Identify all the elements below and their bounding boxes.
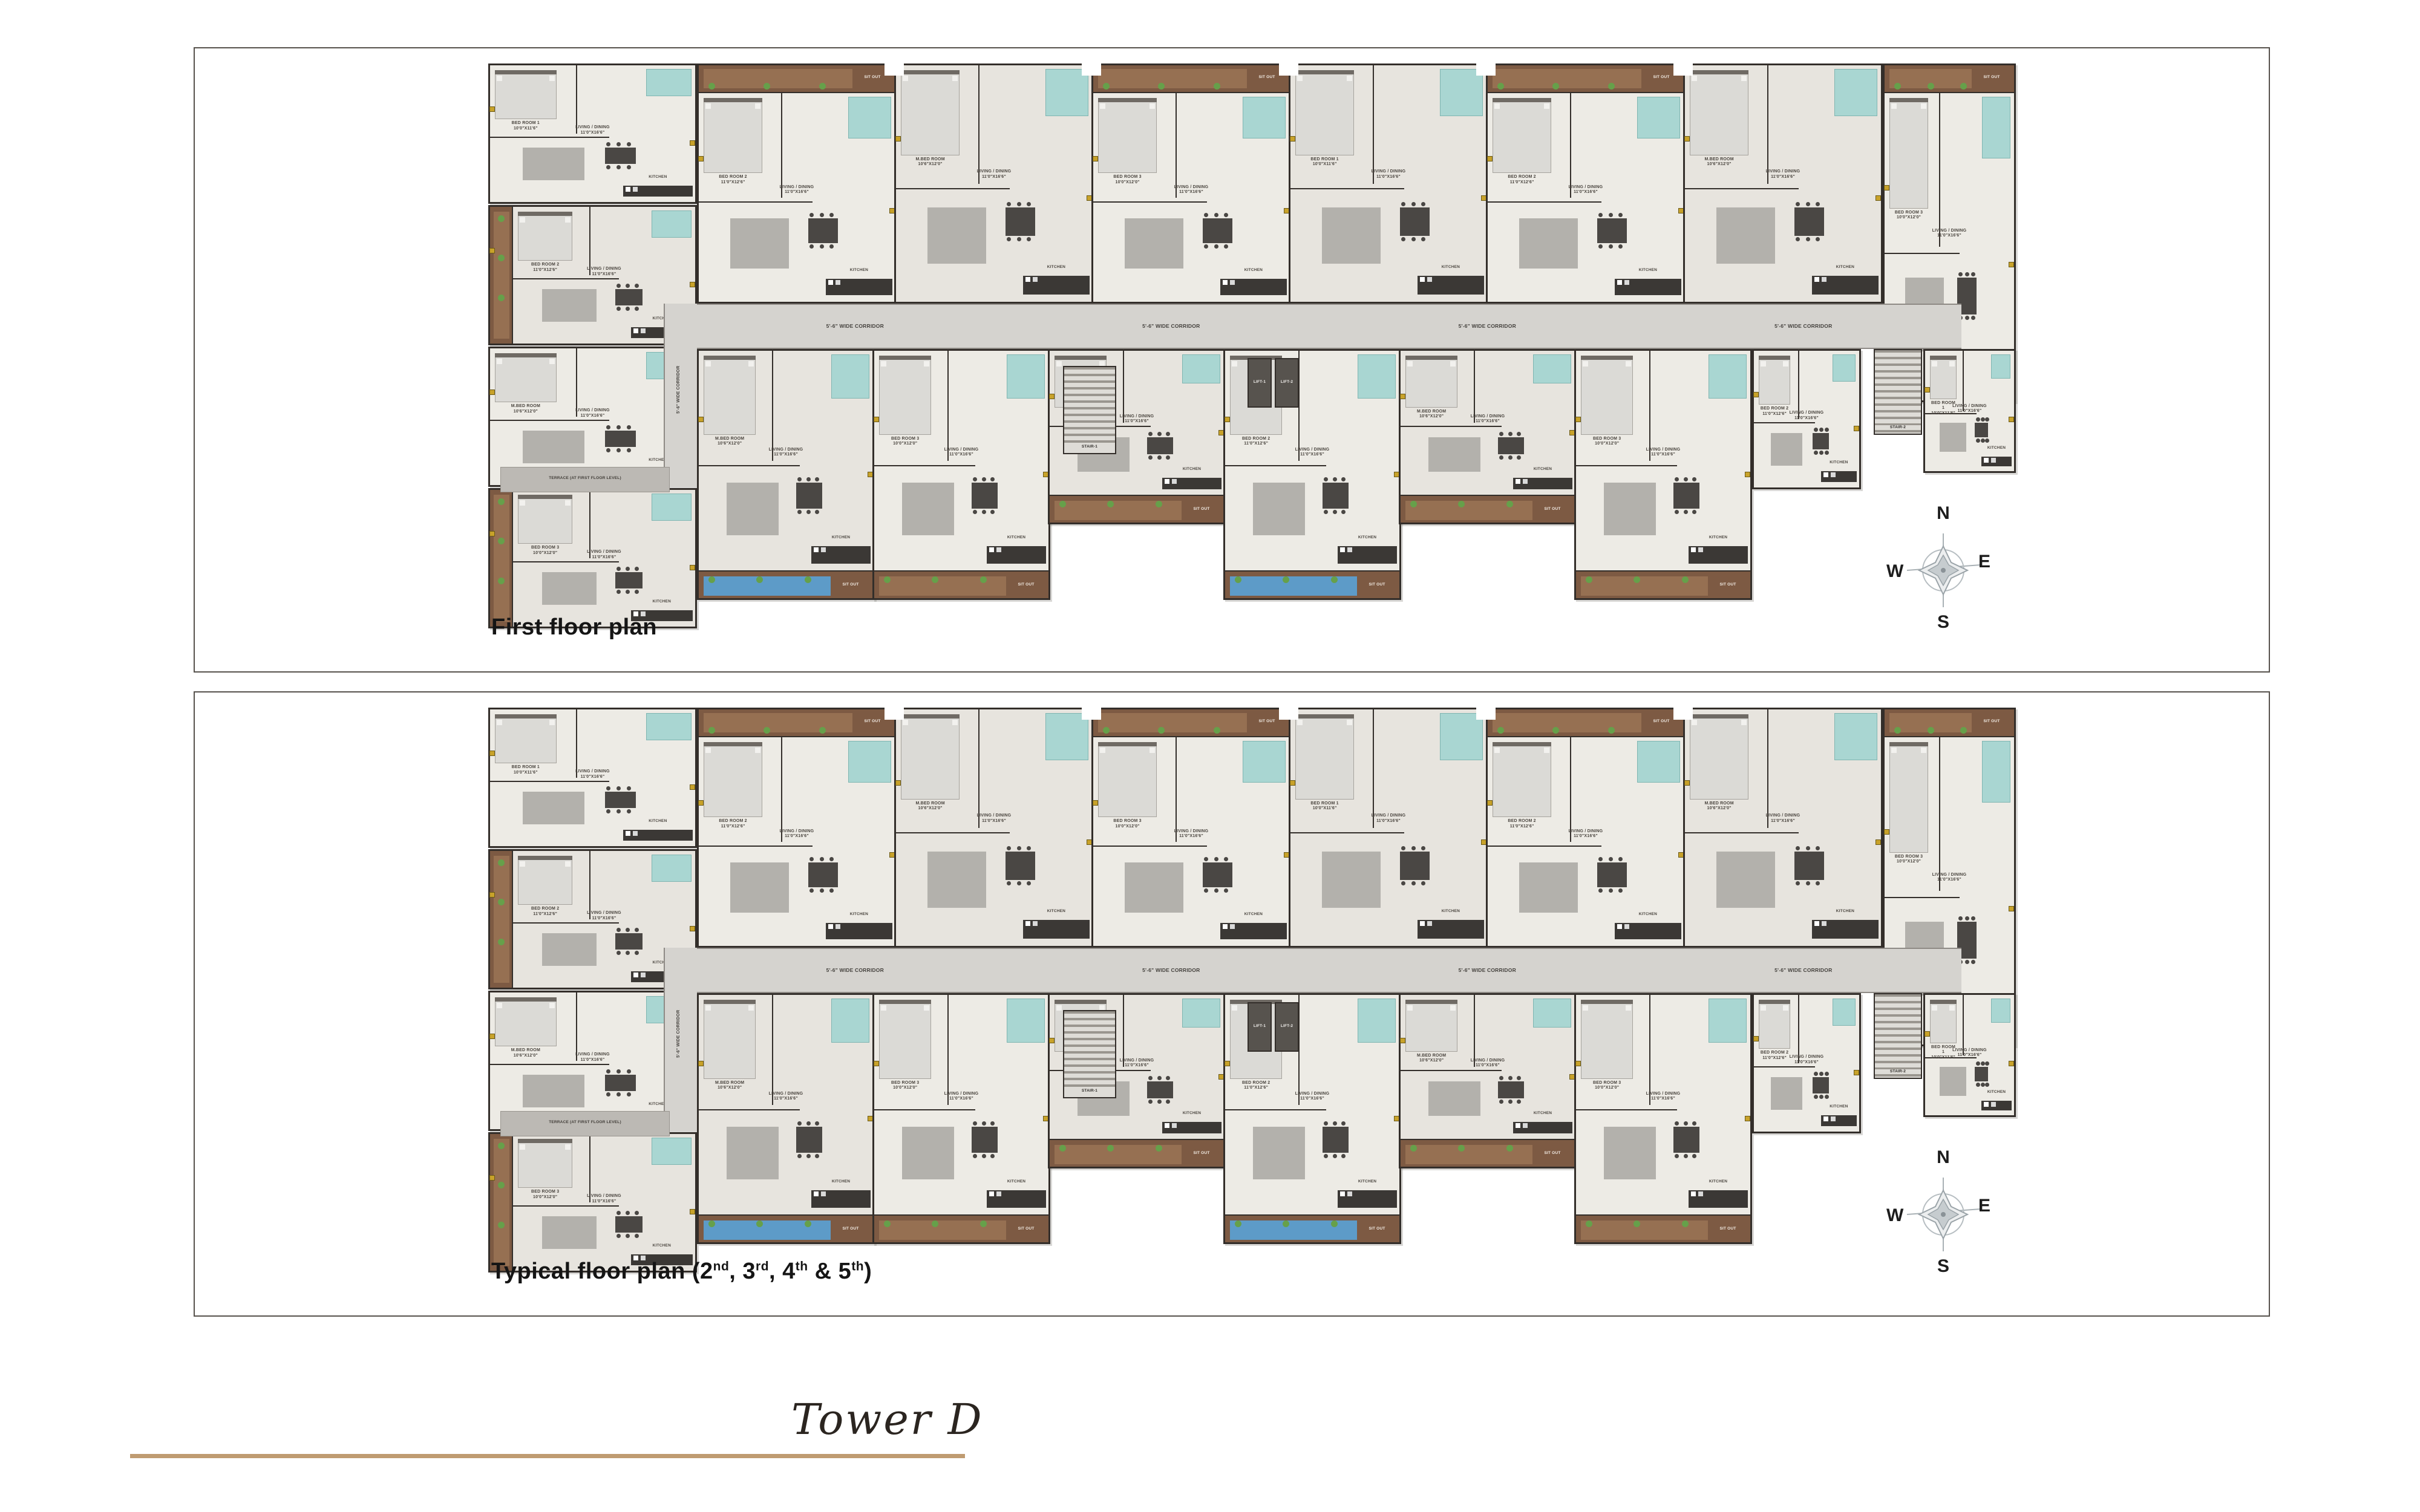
plant-icon [1928, 83, 1934, 90]
pillow-icon [755, 103, 760, 109]
door-marker [1049, 1038, 1055, 1043]
compass-west-label: W [1886, 1207, 1903, 1225]
apartment-unit: SIT OUTBED ROOM 3 10'0"X12'0"LIVING / DI… [872, 349, 1050, 600]
bedroom-label: BED ROOM 2 11'0"X12'6" [1493, 819, 1551, 829]
kitchen-counter [1821, 471, 1857, 482]
chair-icon [1508, 432, 1512, 436]
balcony-label: SIT OUT [1009, 1227, 1044, 1231]
inner-wall [1885, 253, 1960, 254]
appliance-icon [1420, 921, 1425, 926]
chair-icon [982, 510, 986, 514]
appliance-icon [1523, 1123, 1528, 1128]
chair-icon [1421, 202, 1425, 206]
kitchen-label: KITCHEN [987, 535, 1046, 540]
kitchen-label: KITCHEN [1162, 1111, 1221, 1116]
balcony [490, 851, 513, 988]
door-marker [1884, 185, 1889, 191]
kitchen-label: KITCHEN [1338, 535, 1397, 540]
chair-icon [1401, 846, 1405, 850]
plant-icon [498, 1222, 505, 1228]
kitchen-counter [1615, 279, 1681, 296]
bed-icon [518, 1139, 572, 1188]
inner-wall [978, 709, 979, 828]
chair-icon [1981, 417, 1985, 422]
typical-floor-caption: Typical floor plan (2nd, 3rd, 4th & 5th) [491, 1259, 872, 1285]
chair-icon [1814, 1072, 1818, 1076]
chair-icon [1499, 455, 1503, 460]
kitchen-label: KITCHEN [1220, 912, 1287, 917]
chair-icon [1148, 1100, 1153, 1104]
inner-wall [490, 420, 609, 421]
kitchen-label: KITCHEN [1821, 460, 1857, 465]
rug-icon [1322, 207, 1381, 264]
door-marker [489, 892, 495, 898]
inner-wall [1576, 465, 1677, 466]
kitchen-counter [1220, 923, 1287, 940]
door-marker [1753, 392, 1759, 397]
inner-wall [1925, 413, 1977, 414]
balcony [490, 207, 513, 344]
dining-table-icon [1498, 437, 1524, 455]
inner-wall [699, 201, 813, 203]
corridor-vertical [664, 304, 697, 487]
door-marker [1745, 472, 1750, 477]
chair-icon [1825, 451, 1829, 455]
chair-icon [1825, 428, 1829, 432]
inner-wall [1123, 995, 1124, 1067]
pillow-icon [705, 1005, 711, 1011]
balcony-label: SIT OUT [1974, 75, 2009, 80]
chair-icon [1976, 1083, 1980, 1087]
inner-wall [1373, 65, 1374, 184]
staircase: STAIR-1 [1063, 366, 1116, 454]
lift-label: LIFT-2 [1276, 1024, 1298, 1029]
door-marker [690, 926, 695, 931]
living-label: LIVING / DINING 11'0"X16'6" [951, 169, 1038, 180]
bathroom [646, 69, 692, 96]
inner-wall [1798, 995, 1799, 1063]
rug-icon [927, 852, 986, 908]
bed-headboard [495, 997, 557, 1002]
balcony-deck [1098, 713, 1247, 732]
plant-icon [1608, 83, 1615, 90]
chair-icon [982, 1121, 986, 1126]
kitchen-counter [1338, 1190, 1397, 1208]
balcony-deck [1581, 576, 1708, 596]
chair-icon [627, 448, 631, 452]
chair-icon [626, 1234, 630, 1238]
pillow-icon [549, 359, 555, 364]
plant-icon [1552, 727, 1559, 734]
balcony-deck [1405, 501, 1532, 520]
kitchen-counter [1023, 276, 1090, 295]
appliance-icon [1617, 924, 1622, 929]
door-marker [1290, 136, 1295, 142]
inner-wall [576, 65, 577, 134]
appliance-icon [996, 1191, 1001, 1196]
plant-icon [805, 576, 811, 583]
chair-icon [1806, 237, 1810, 241]
bathroom [1833, 999, 1856, 1026]
shaft-notch [1279, 705, 1298, 720]
living-label: LIVING / DINING 11'0"X16'6" [1921, 229, 1978, 239]
chair-icon [1825, 1072, 1829, 1076]
inner-wall [1939, 737, 1940, 891]
kitchen-label: KITCHEN [1338, 1179, 1397, 1184]
bed-icon [495, 714, 557, 763]
bedroom-label: BED ROOM 2 11'0"X12'6" [704, 819, 762, 829]
apartment-unit: SIT OUTM.BED ROOM 10'6"X12'0"LIVING / DI… [1399, 993, 1577, 1168]
balcony-deck [704, 713, 852, 732]
chair-icon [1157, 1100, 1162, 1104]
door-marker [1753, 1036, 1759, 1041]
corridor-vertical [664, 948, 697, 1131]
caption-ordinal: nd [713, 1259, 730, 1273]
rug-icon [1771, 433, 1802, 466]
chair-icon [1333, 1154, 1337, 1158]
pillow-icon [1347, 76, 1352, 81]
pillow-icon [520, 861, 525, 867]
inner-wall [1093, 201, 1207, 203]
plant-icon [498, 1142, 505, 1149]
chair-icon [1333, 1121, 1337, 1126]
plant-icon [1410, 501, 1417, 507]
inner-wall [699, 846, 813, 847]
chair-icon [806, 1121, 811, 1126]
chair-icon [1341, 1154, 1346, 1158]
plant-icon [498, 215, 505, 222]
chair-icon [1609, 888, 1613, 893]
appliance-icon [1165, 479, 1169, 484]
chair-icon [1007, 881, 1011, 885]
pillow-icon [1783, 1005, 1788, 1011]
inner-wall [513, 278, 619, 279]
rug-icon [523, 1075, 584, 1107]
chair-icon [806, 477, 811, 481]
plant-icon [980, 576, 987, 583]
apartment-unit: M.BED ROOM 10'6"X12'0"LIVING / DINING 11… [894, 64, 1094, 304]
chair-icon [806, 1154, 811, 1158]
living-label: LIVING / DINING 11'0"X16'6" [1740, 169, 1826, 180]
chair-icon [1825, 1095, 1829, 1099]
bedroom-label: BED ROOM 3 10'0"X12'0" [1098, 819, 1157, 829]
chair-icon [626, 1211, 630, 1215]
plant-icon [1497, 727, 1504, 734]
bed-headboard [879, 1000, 931, 1004]
dining-table-icon [796, 483, 822, 509]
living-label: LIVING / DINING 11'0"X16'6" [748, 1092, 825, 1102]
lift-label: LIFT-1 [1249, 380, 1270, 385]
door-marker [1093, 800, 1098, 806]
inner-wall [513, 561, 619, 562]
pillow-icon [1232, 1005, 1237, 1011]
compass-south-label: S [1883, 1257, 2004, 1276]
bed-headboard [518, 1139, 572, 1143]
chair-icon [1148, 455, 1153, 460]
living-label: LIVING / DINING 11'0"X16'6" [1543, 185, 1629, 195]
caption-ordinal: th [851, 1259, 864, 1273]
chair-icon [627, 1092, 631, 1097]
bed-headboard [704, 98, 762, 102]
plant-icon [1331, 1220, 1338, 1227]
inner-wall [589, 207, 590, 275]
chair-icon [626, 307, 630, 311]
pillow-icon [1232, 361, 1237, 367]
bedroom-label: M.BED ROOM 10'6"X12'0" [1690, 801, 1748, 812]
chair-icon [1684, 1154, 1688, 1158]
inner-wall [1685, 188, 1799, 189]
rug-icon [1428, 1081, 1480, 1116]
kitchen-label: KITCHEN [1513, 1111, 1572, 1116]
plant-icon [1235, 1220, 1241, 1227]
chair-icon [616, 1092, 621, 1097]
chair-icon [606, 425, 610, 429]
door-marker [1884, 829, 1889, 835]
appliance-icon [996, 547, 1001, 552]
chair-icon [1224, 244, 1228, 249]
chair-icon [1965, 316, 1969, 320]
balcony-label: SIT OUT [1249, 75, 1284, 80]
chair-icon [1814, 1095, 1818, 1099]
chair-icon [606, 448, 610, 452]
kitchen-label: KITCHEN [1812, 265, 1879, 270]
compass-south-label: S [1883, 613, 2004, 631]
pillow-icon [565, 861, 571, 867]
door-marker [1684, 136, 1690, 142]
dining-table-icon [1147, 1081, 1173, 1099]
kitchen-counter [1812, 276, 1879, 295]
chair-icon [1816, 881, 1820, 885]
inner-wall [1290, 188, 1404, 189]
pillow-icon [1407, 361, 1413, 367]
bed-icon [1493, 742, 1551, 817]
inner-wall [1649, 995, 1650, 1105]
kitchen-label: KITCHEN [631, 1243, 693, 1248]
chair-icon [806, 510, 811, 514]
appliance-icon [641, 973, 646, 977]
inner-wall [1963, 351, 1964, 411]
kitchen-label: KITCHEN [1812, 909, 1879, 914]
door-marker [1225, 1061, 1230, 1066]
appliance-icon [1984, 1102, 1989, 1107]
balcony-label: SIT OUT [1974, 719, 2009, 724]
door-marker [1093, 156, 1098, 161]
kitchen-counter [987, 546, 1046, 564]
bed-icon [518, 856, 572, 905]
appliance-icon [626, 831, 630, 836]
door-marker [489, 248, 495, 253]
corridor-label: 5'-6" WIDE CORRIDOR [1433, 967, 1542, 973]
living-label: LIVING / DINING 11'0"X16'6" [1950, 404, 1989, 414]
pillow-icon [1297, 76, 1303, 81]
chair-icon [1985, 417, 1989, 422]
pillow-icon [1583, 361, 1588, 367]
terrace: TERRACE (AT FIRST FLOOR LEVEL) [500, 1111, 670, 1136]
chair-icon [1027, 846, 1031, 850]
pillow-icon [1544, 103, 1549, 109]
lift: LIFT-2 [1275, 358, 1299, 408]
shaft-notch [1673, 705, 1693, 720]
kitchen-label: KITCHEN [826, 268, 892, 273]
chair-icon [1816, 202, 1820, 206]
balcony: SIT OUT [699, 709, 895, 737]
shaft-notch [1082, 61, 1101, 76]
balcony-deck [494, 212, 509, 339]
pillow-icon [520, 1144, 525, 1150]
kitchen-label: KITCHEN [811, 1179, 871, 1184]
chair-icon [616, 786, 621, 790]
pillow-icon [748, 361, 754, 367]
bathroom [1358, 999, 1396, 1043]
kitchen-counter [623, 830, 693, 841]
inner-wall [772, 351, 773, 461]
appliance-icon [1698, 547, 1703, 552]
bed-icon [879, 356, 931, 435]
pillow-icon [520, 500, 525, 506]
living-label: LIVING / DINING 11'0"X16'6" [1625, 1092, 1702, 1102]
balcony: SIT OUT [1225, 570, 1399, 598]
caption-text: , 4 [769, 1259, 796, 1284]
bedroom-label: BED ROOM 1 10'0"X11'6" [1295, 801, 1354, 812]
chair-icon [990, 477, 995, 481]
terrace: TERRACE (AT FIRST FLOOR LEVEL) [500, 467, 670, 492]
bedroom-label: BED ROOM 2 11'0"X12'6" [1230, 437, 1282, 447]
appliance-icon [633, 328, 638, 333]
living-label: LIVING / DINING 11'0"X16'6" [1148, 185, 1235, 195]
chair-icon [616, 142, 621, 146]
bed-headboard [1930, 1000, 1957, 1004]
dining-table-icon [1006, 852, 1035, 880]
chair-icon [1609, 857, 1613, 861]
bathroom [652, 1138, 692, 1165]
typical-floor-plan-panel: BED ROOM 1 10'0"X11'6"LIVING / DINING 11… [194, 691, 2270, 1317]
bed-headboard [1295, 70, 1354, 74]
living-label: LIVING / DINING 11'0"X16'6" [564, 911, 644, 921]
inner-wall [947, 351, 949, 461]
balcony-label: SIT OUT [1009, 582, 1044, 587]
plant-icon [1552, 83, 1559, 90]
chair-icon [1017, 881, 1021, 885]
bed-icon [518, 212, 572, 261]
balcony-label: SIT OUT [1359, 582, 1395, 587]
dining-table-icon [605, 148, 636, 164]
living-label: LIVING / DINING 11'0"X16'6" [923, 1092, 1000, 1102]
inner-wall [513, 1205, 619, 1207]
door-marker [1400, 394, 1405, 399]
bed-headboard [518, 856, 572, 860]
inner-wall [1767, 65, 1768, 184]
chair-icon [626, 928, 630, 932]
chair-icon [635, 307, 639, 311]
door-marker [874, 417, 879, 422]
chair-icon [1692, 1154, 1696, 1158]
dining-table-icon [1975, 423, 1988, 437]
pillow-icon [520, 217, 525, 223]
bathroom [1637, 97, 1680, 138]
bed-headboard [704, 1000, 756, 1004]
bathroom [1243, 97, 1286, 138]
appliance-icon [1624, 924, 1629, 929]
balcony-label: SIT OUT [855, 719, 890, 724]
kitchen-label: KITCHEN [1220, 268, 1287, 273]
pillow-icon [1149, 748, 1155, 753]
appliance-icon [1420, 277, 1425, 282]
pillow-icon [1494, 748, 1500, 753]
bed-headboard [518, 212, 572, 216]
chair-icon [1618, 888, 1623, 893]
door-marker [489, 1175, 495, 1181]
balcony-label: SIT OUT [1359, 1227, 1395, 1231]
dining-table-icon [1498, 1081, 1524, 1099]
plant-icon [1156, 501, 1162, 507]
appliance-icon [1347, 1191, 1352, 1196]
balcony-deck [879, 1220, 1006, 1240]
chair-icon [1027, 237, 1031, 241]
door-marker [874, 1061, 879, 1066]
balcony-label: SIT OUT [1184, 1151, 1219, 1156]
dining-table-icon [1975, 1067, 1988, 1081]
kitchen-counter [1513, 478, 1572, 489]
inner-wall [1093, 846, 1207, 847]
rug-icon [902, 483, 954, 535]
bed-icon [704, 98, 762, 173]
plant-icon [1682, 1220, 1689, 1227]
chair-icon [1976, 438, 1980, 443]
appliance-icon [1698, 1191, 1703, 1196]
chair-icon [982, 1154, 986, 1158]
appliance-icon [641, 328, 646, 333]
pillow-icon [1056, 1005, 1062, 1011]
bathroom [1834, 713, 1877, 760]
inner-wall [1767, 709, 1768, 828]
door-marker [1575, 1061, 1581, 1066]
pillow-icon [903, 720, 908, 725]
balcony-label: SIT OUT [1535, 507, 1570, 512]
inner-wall [947, 995, 949, 1105]
balcony: SIT OUT [1225, 1214, 1399, 1242]
appliance-icon [626, 187, 630, 192]
pillow-icon [1626, 361, 1631, 367]
corridor: 5'-6" WIDE CORRIDOR5'-6" WIDE CORRIDOR5'… [697, 948, 1961, 993]
plant-icon [708, 727, 715, 734]
chair-icon [1618, 857, 1623, 861]
living-label: LIVING / DINING 11'0"X16'6" [754, 185, 840, 195]
chair-icon [627, 142, 631, 146]
staircase: STAIR-2 [1874, 993, 1922, 1079]
chair-icon [1598, 213, 1603, 217]
pillow-icon [1891, 103, 1897, 109]
chair-icon [1157, 455, 1162, 460]
kitchen-counter [1689, 546, 1748, 564]
chair-icon [1618, 213, 1623, 217]
balcony-label: SIT OUT [1710, 1227, 1745, 1231]
appliance-icon [1991, 458, 1996, 463]
chair-icon [606, 1092, 610, 1097]
bedroom-label: BED ROOM 1 10'0"X11'6" [1295, 157, 1354, 168]
plant-icon [1410, 1145, 1417, 1152]
chair-icon [1411, 202, 1416, 206]
chair-icon [973, 477, 977, 481]
appliance-icon [989, 1191, 994, 1196]
balcony-deck [879, 576, 1006, 596]
bathroom [1182, 354, 1220, 383]
bed-icon [1581, 1000, 1633, 1079]
chair-icon [990, 1154, 995, 1158]
chair-icon [1166, 432, 1170, 436]
chair-icon [616, 928, 621, 932]
chair-icon [815, 510, 819, 514]
door-marker [2009, 262, 2014, 267]
